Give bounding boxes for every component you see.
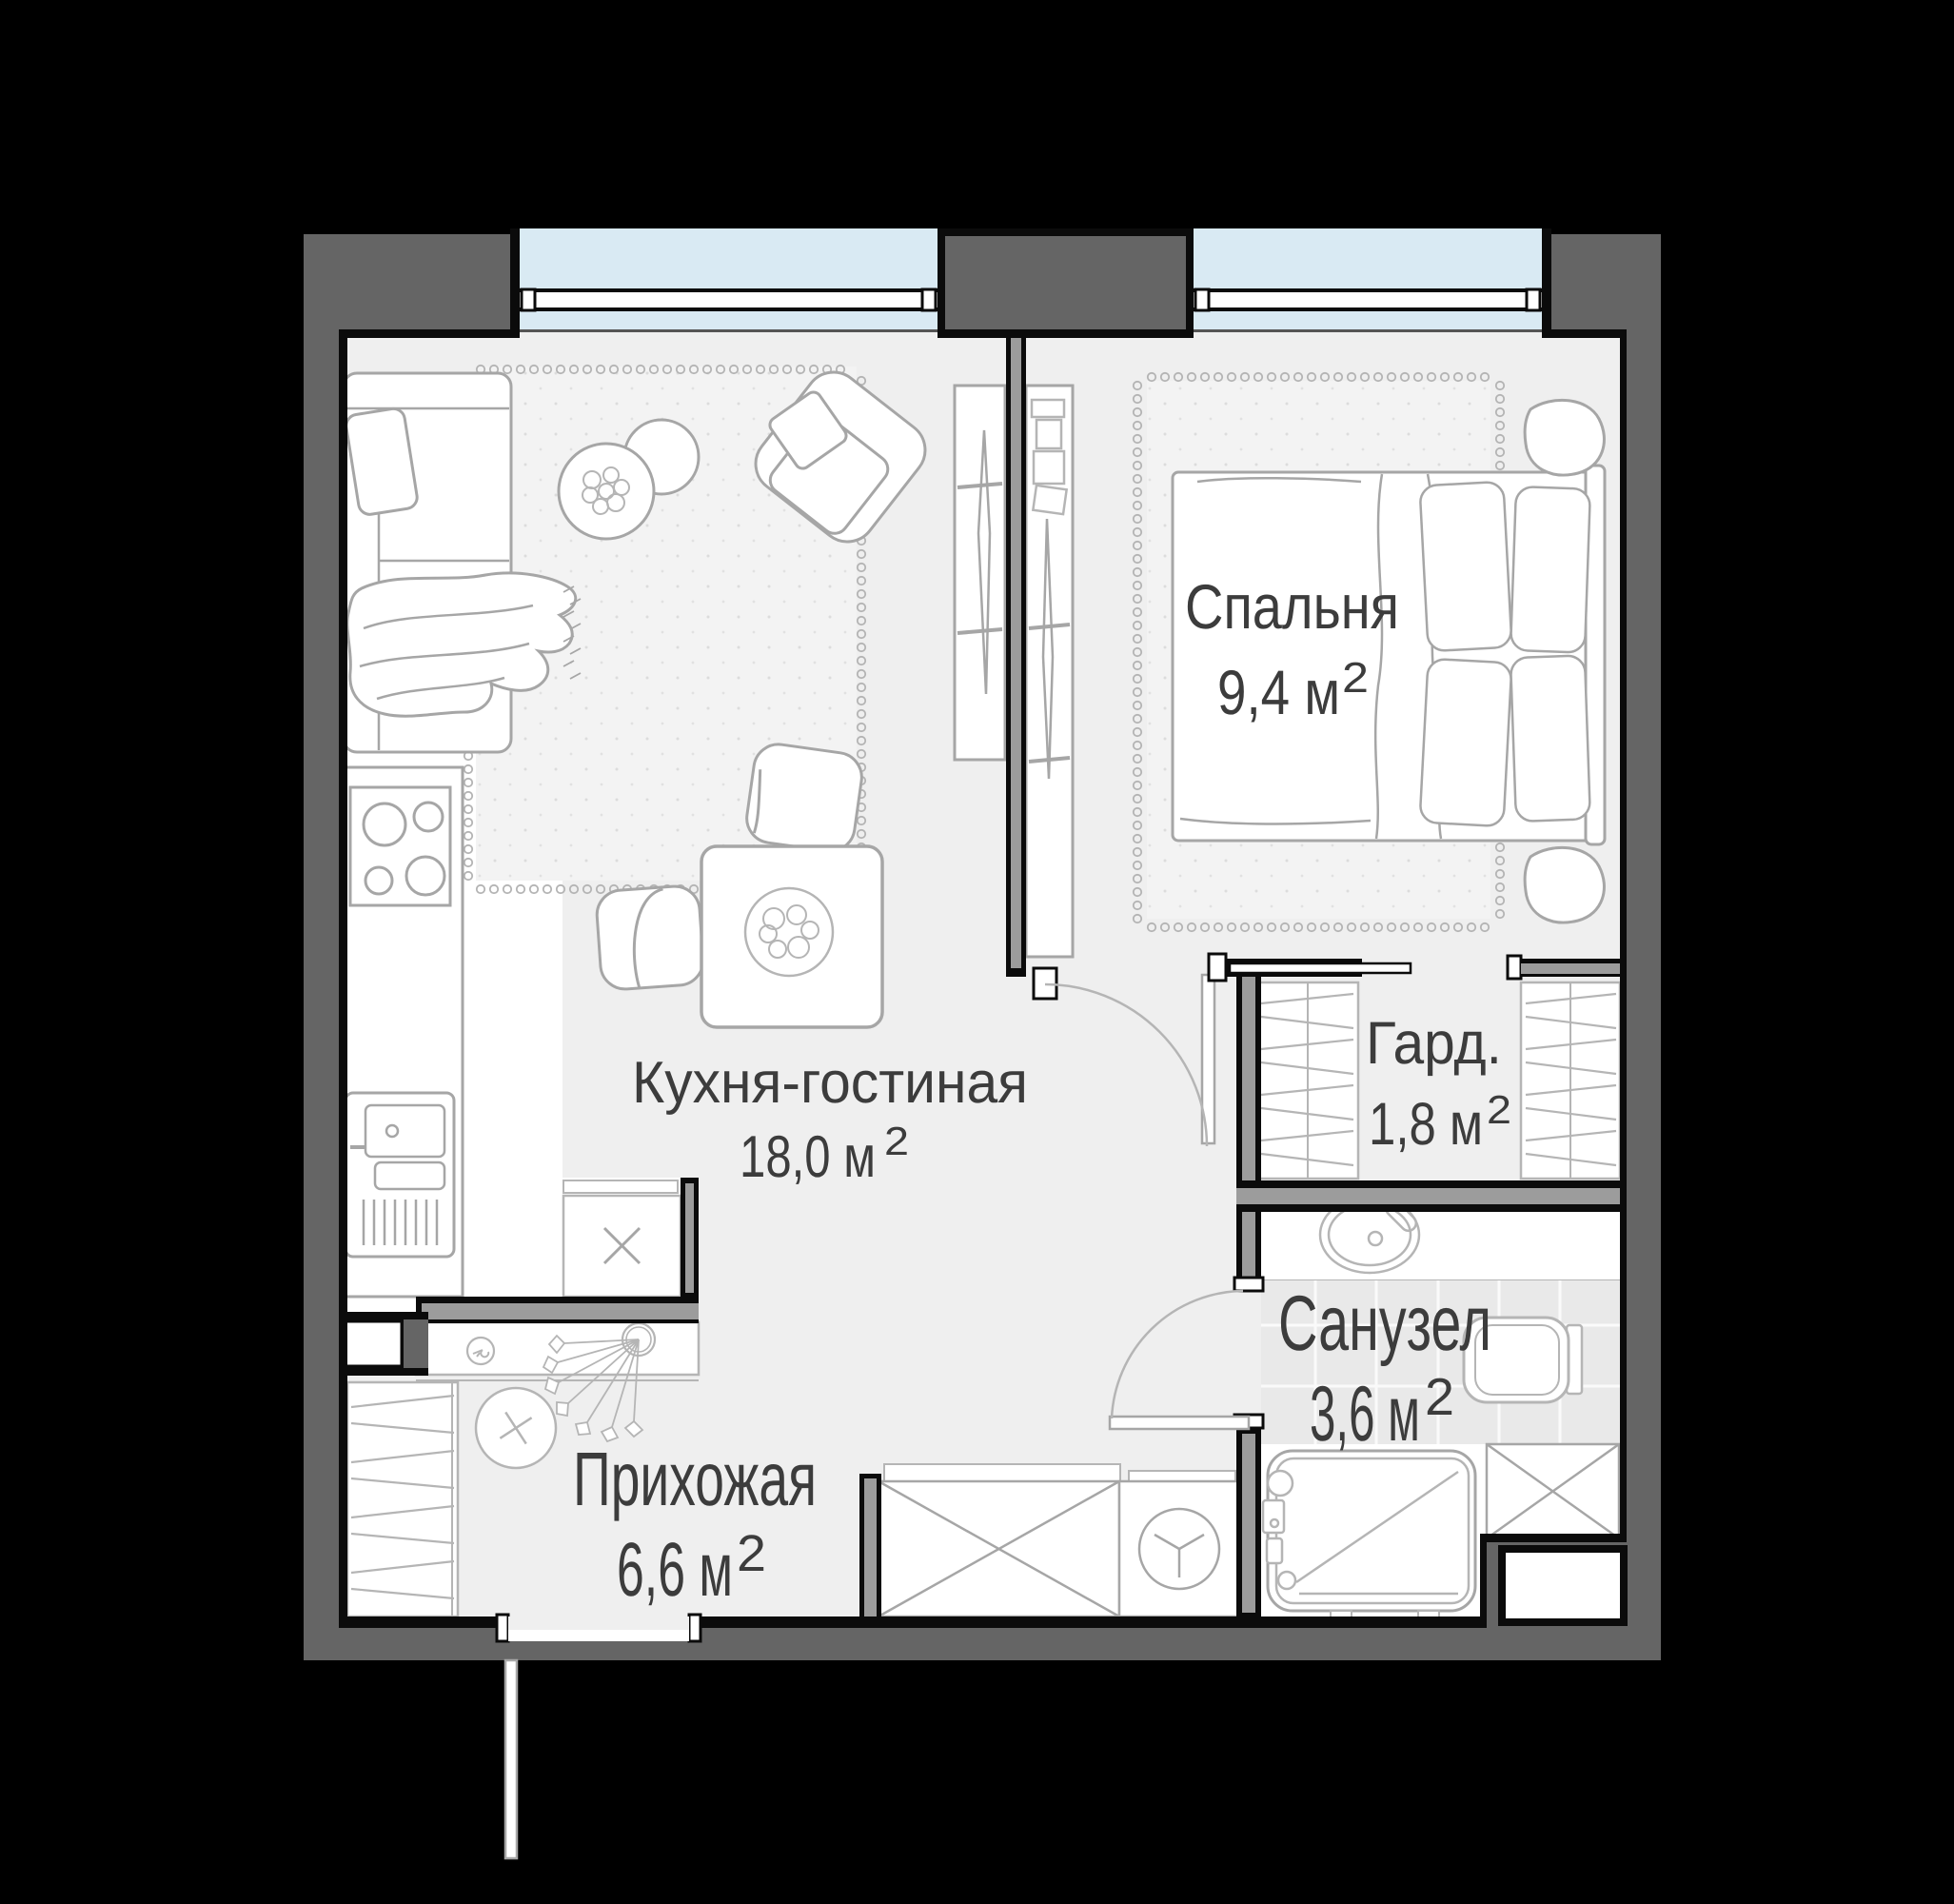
svg-text:2: 2 [884,1119,909,1163]
svg-text:1,8 м: 1,8 м [1369,1091,1483,1158]
svg-text:Кухня-гостиная: Кухня-гостиная [632,1050,1028,1116]
svg-text:Гард.: Гард. [1366,1010,1502,1077]
svg-text:2: 2 [1342,653,1369,702]
svg-text:Спальня: Спальня [1185,571,1399,642]
svg-text:2: 2 [737,1525,766,1582]
svg-text:18,0 м: 18,0 м [740,1124,876,1190]
svg-text:Санузел: Санузел [1278,1280,1491,1367]
svg-text:9,4 м: 9,4 м [1217,657,1340,727]
svg-text:3,6 м: 3,6 м [1310,1371,1420,1458]
svg-text:2: 2 [1425,1367,1454,1426]
svg-text:6,6 м: 6,6 м [617,1527,733,1612]
svg-text:2: 2 [1487,1087,1511,1132]
svg-text:Прихожая: Прихожая [573,1437,817,1521]
